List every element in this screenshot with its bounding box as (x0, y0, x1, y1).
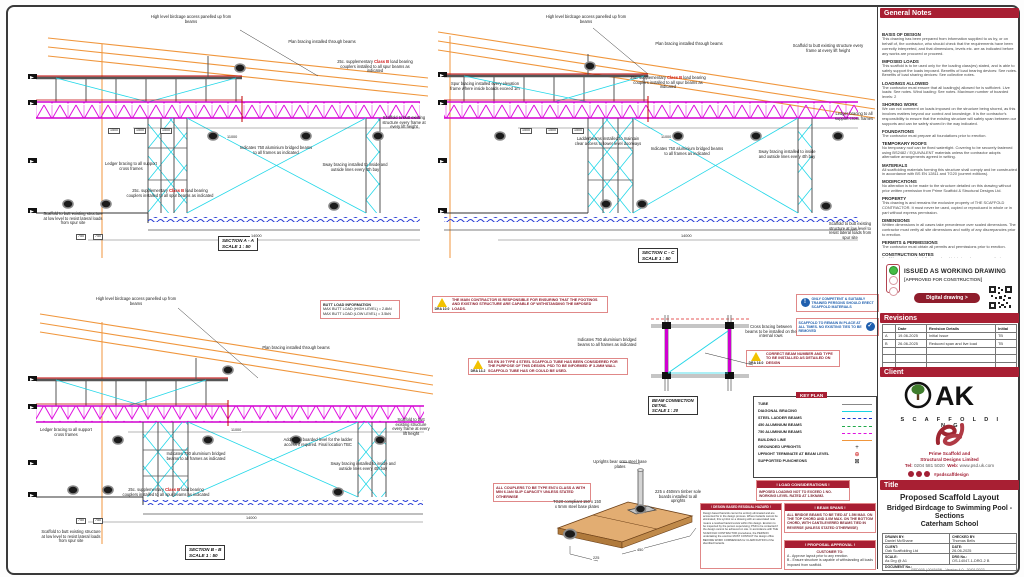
annotation-butt-low-level: Scaffold to butt existing structure at l… (826, 222, 874, 241)
psd-company-name: Prime Scaffold andStructural Designs Lim… (878, 451, 1021, 462)
drawing-title: Proposed Scaffold Layout (878, 493, 1021, 502)
issued-substatus: [APPROVED FOR CONSTRUCTION] (904, 277, 982, 282)
dimension-label: 14000 (250, 234, 263, 238)
beam-connection-detail-label: BEAM CONNECTION DETAIL SCALE 1 : 20 (648, 396, 698, 415)
facebook-icon[interactable] (908, 471, 914, 477)
legend-row: UPRIGHT TERMINATE AT BEAM LEVEL⊕ (754, 451, 876, 458)
residual-hazard-box: ! DESIGN BASED RESIDUAL HAZARD ! Design … (700, 503, 782, 569)
dimension-label: 1500 (160, 128, 172, 134)
dimension-label: 750 (76, 234, 86, 240)
dimension-label: 11000 (230, 428, 242, 432)
revision-row-empty (883, 347, 1017, 355)
beam-spans-box: ! BEAM SPANS ! ALL BRIDGE BEAMS TO BE TI… (784, 503, 876, 533)
annotation-suppl-couplers: 25c. supplementary Class B load bearing … (333, 60, 417, 74)
dimension-label: 14000 (245, 516, 258, 520)
annotation-added-boarded-level: Additional boarded level for the ladder … (282, 438, 354, 447)
annotation-high-level-access: High level birdcage access panelled up f… (150, 15, 232, 24)
beam-connection-detail-drawing (645, 313, 755, 393)
mandatory-box-remain-in-place: Scaffold to remain in place at all times… (796, 318, 879, 336)
load-considerations-box: ! LOAD CONSIDERATIONS ! IMPOSED LOADING … (756, 480, 850, 501)
sheet-footer: PSD005 | 004545N - Version 4.0 - 30/01/2… (878, 568, 1018, 572)
instagram-icon[interactable] (916, 471, 922, 477)
mandatory-icon: ! (801, 298, 810, 307)
annotation-high-level-access: High level birdcage access panelled up f… (95, 297, 177, 306)
annotation-ledger-bracing: Ledger bracing to all support cross fram… (36, 428, 96, 437)
upright-terminate-symbol: ⊕ (842, 452, 872, 458)
key-plan-legend: KEY PLAN TUBE DIAGONAL BRACING STEEL LAD… (753, 396, 877, 478)
title-block-panel: General Notes BASIS OF DESIGNThis drawin… (877, 7, 1021, 569)
traffic-light-icon (886, 264, 900, 293)
dimension-label: 750 (93, 234, 103, 240)
revision-row-empty (883, 355, 1017, 363)
annotation-sway-bracing: Sway bracing installed to inside and out… (330, 462, 396, 471)
client-header: Client (880, 367, 1019, 377)
annotation-butt-every-frame: Scaffold to butt existing structure ever… (380, 116, 428, 130)
annotation-ledger-bracing: Ledger bracing to all support cross fram… (100, 162, 162, 171)
legend-row: STEEL LADDER BEAMS (754, 415, 876, 422)
dimension-label: 1500 (572, 128, 584, 134)
dimension-label: 750 (93, 518, 103, 524)
annotation-butt-every-frame: Scaffold to butt existing structure ever… (390, 418, 432, 437)
annotation-suppl-couplers: 25c. supplementary Class B load bearing … (626, 76, 710, 90)
checked-by-cell: CHECKED BY:Thomas Bells (950, 534, 1017, 544)
svg-text:AK: AK (935, 381, 974, 411)
general-notes-header: General Notes (880, 8, 1019, 18)
revision-row: A19-06-2025Initial IssueTB (883, 332, 1017, 340)
mandatory-box-competent-persons: ! Only competent & suitably trained pers… (796, 294, 879, 312)
legend-row: SUPPORTED PUNCHEONS⊠ (754, 459, 876, 466)
building-line-swatch (842, 440, 872, 441)
title-header: Title (880, 480, 1019, 490)
annotation-suppl-couplers: 25c. supplementary Class B load bearing … (122, 488, 210, 497)
alu-450-beam-swatch (842, 426, 872, 427)
dimension-label: 750 (76, 518, 86, 524)
check-icon: ✓ (866, 322, 875, 331)
tube-line-swatch (842, 404, 872, 405)
annotation-ladderbeams: Ladderbeams installed to maintain clear … (572, 137, 644, 146)
drawn-by-cell: DRAWN BY:Daniel McShane (883, 534, 950, 544)
legend-row: DIAGONAL BRACING (754, 408, 876, 415)
dimension-label: 1500 (134, 128, 146, 134)
digital-drawing-button[interactable]: Digital drawing > (914, 293, 980, 303)
project-name: Caterham School (878, 521, 1021, 528)
legend-row: BUILDING LINE (754, 437, 876, 444)
steel-ladder-beam-swatch (842, 418, 872, 419)
revisions-table: DateRevision DetailsInitial A19-06-2025I… (882, 324, 1017, 370)
psd-contact-line: Tel: 0204 581 5020 Web: www.psd.uk.com (878, 463, 1021, 468)
legend-row: 750 ALUMINIUM BEAMS (754, 430, 876, 437)
alu-750-beam-swatch (842, 433, 872, 434)
annotation-plan-bracing: Plan bracing installed through beams (655, 42, 723, 47)
warning-triangle-icon (437, 298, 447, 307)
annotation-spur-bracing: Spur bracing installed every elevation f… (450, 82, 520, 91)
annotation-sway-bracing: Sway bracing installed to inside and out… (756, 150, 818, 159)
warning-box-beam-number: DRA 16.0 Correct beam number and type to… (746, 350, 840, 367)
dimension-label: 1500 (108, 128, 120, 134)
section-aa-label: SECTION A - ASCALE 1 : 50 (218, 236, 258, 251)
drawing-info-grid: DRAWN BY:Daniel McShane CHECKED BY:Thoma… (882, 533, 1017, 571)
psd-monogram-logo (934, 421, 966, 449)
annotation-butt-every-frame: Scaffold to butt existing structure ever… (792, 44, 864, 53)
issued-status: ISSUED AS WORKING DRAWING (904, 268, 1006, 275)
annotation-suppl-couplers: 25c. supplementary Class B load bearing … (126, 189, 214, 198)
oak-logo-mark: AK (903, 379, 999, 411)
hashtag: #psdscaffdesign (934, 472, 969, 477)
dimension-label: 11000 (226, 135, 238, 139)
annotation-750-beams: Indicates 750 aluminium bridged beams to… (575, 338, 639, 347)
annotation-upright-base-plate: Uprights bear onto steel base plates (592, 460, 648, 469)
drg-no-cell: DRG No.:OS-14047-1-DRG-2 B (950, 554, 1017, 564)
qr-code (988, 285, 1013, 310)
annotation-butt-low-level: Scaffold to butt existing structure at l… (40, 530, 102, 544)
proposal-approval-box: ! PROPOSAL APPROVAL ! CUSTOMER TO: A - A… (784, 540, 876, 570)
annotation-plan-bracing: Plan bracing installed through beams (262, 346, 330, 351)
warning-box-tube-type: DRA 13.2 BS EN 39 Type 4 steel scaffold … (468, 358, 628, 375)
dimension-label: 450 (636, 548, 644, 552)
diagonal-bracing-swatch (842, 411, 872, 412)
annotation-750-beams: Indicates 750 aluminium bridged beams to… (160, 452, 232, 461)
annotation-sway-bracing: Sway bracing installed to inside and out… (320, 163, 390, 172)
general-notes-body: BASIS OF DESIGNThis drawing has been pre… (882, 30, 1017, 258)
drawing-sheet: High level birdcage access panelled up f… (0, 0, 1024, 577)
client-cell: CLIENT:Oak Scaffolding Ltd (883, 544, 950, 554)
legend-row: 450 ALUMINIUM BEAMS (754, 423, 876, 430)
annotation-tg20-base-plates: TG20 compliant 150 x 150 x 5mm steel bas… (552, 500, 602, 509)
warning-box-footings: DRA 10.0 The main contractor is responsi… (432, 296, 608, 313)
section-cc-label: SECTION C - CSCALE 1 : 50 (638, 248, 678, 263)
scale-cell: SCALE:As Drg @ A1 (883, 554, 950, 564)
dimension-label: 1500 (546, 128, 558, 134)
warning-triangle-icon (473, 360, 483, 369)
annotation-butt-low-level: Scaffold to butt existing structure at l… (42, 212, 104, 226)
legend-row: GROUNDED UPRIGHTS+ (754, 444, 876, 451)
dimension-label: 14000 (680, 234, 693, 238)
dimension-label: 11000 (660, 135, 672, 139)
grounded-upright-symbol: + (842, 445, 872, 451)
key-plan-title: KEY PLAN (796, 392, 827, 398)
dimension-label: 1500 (520, 128, 532, 134)
drawing-subtitle: Bridged Birdcage to Swimming Pool - Sect… (884, 505, 1015, 520)
butt-load-info-box: BUTT LOAD INFORMATION MAX BUTT LOAD (HIG… (320, 300, 400, 319)
revisions-header: Revisions (880, 313, 1019, 323)
legend-row: TUBE (754, 401, 876, 408)
section-bb-label: SECTION B - BSCALE 1 : 50 (185, 545, 225, 560)
date-cell: DATE:26-06-2025 (950, 544, 1017, 554)
supported-puncheon-symbol: ⊠ (842, 459, 872, 465)
annotation-ledger-bracing: Ledger bracing to all support cross fram… (834, 112, 874, 121)
section-bb-drawing (28, 292, 433, 552)
annotation-timber-sole-boards: 225 x 450mm timber sole boards installed… (652, 490, 704, 504)
revision-row: B26-06-2025Reduced span and live loadTB (883, 340, 1017, 348)
annotation-high-level-access: High level birdcage access panelled up f… (545, 15, 627, 24)
sole-board-detail-drawing (550, 462, 700, 566)
annotation-750-beams: Indicates 750 aluminium bridged beams to… (650, 147, 724, 156)
annotation-750-beams: Indicates 750 aluminium bridged beams to… (238, 146, 314, 155)
social-row: #psdscaffdesign (908, 471, 969, 477)
annotation-plan-bracing: Plan bracing installed through beams (288, 40, 356, 45)
linkedin-icon[interactable] (924, 471, 930, 477)
dimension-label: 225 (592, 556, 600, 560)
